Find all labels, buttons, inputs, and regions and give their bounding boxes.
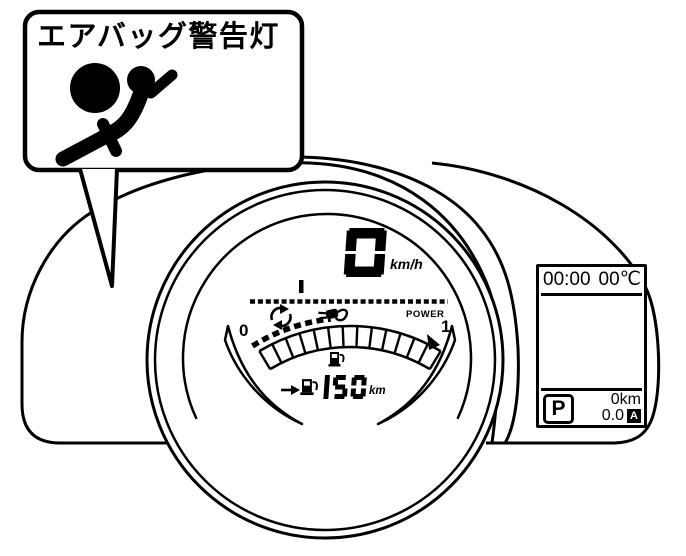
temperature-readout: 00℃ [599,270,641,289]
power-bar-zero-tick [299,280,304,293]
multi-information-display: 00:00 00℃ P 0km 0.0 A [536,264,647,428]
trip-meter-readout: 0.0 [602,408,624,424]
clock-readout: 00:00 [543,270,591,289]
gear-position-indicator: P [543,394,574,424]
airbag-warning-light-diagram: エアバッグ警告灯 km/h POWER 0 1 km 00:00 00℃ P 0… [0,0,686,556]
trip-mode-badge: A [627,409,641,423]
gauge-min-label: 0 [239,322,248,339]
power-meter-label: POWER [406,310,444,320]
range-unit-label: km [369,386,386,398]
display-divider-top [541,293,642,296]
callout-label: エアバッグ警告灯 [37,23,280,52]
gauge-max-label: 1 [441,318,450,335]
speed-unit-label: km/h [390,257,423,271]
odometer-readout: 0km [611,392,641,408]
callout-tail [80,169,117,286]
